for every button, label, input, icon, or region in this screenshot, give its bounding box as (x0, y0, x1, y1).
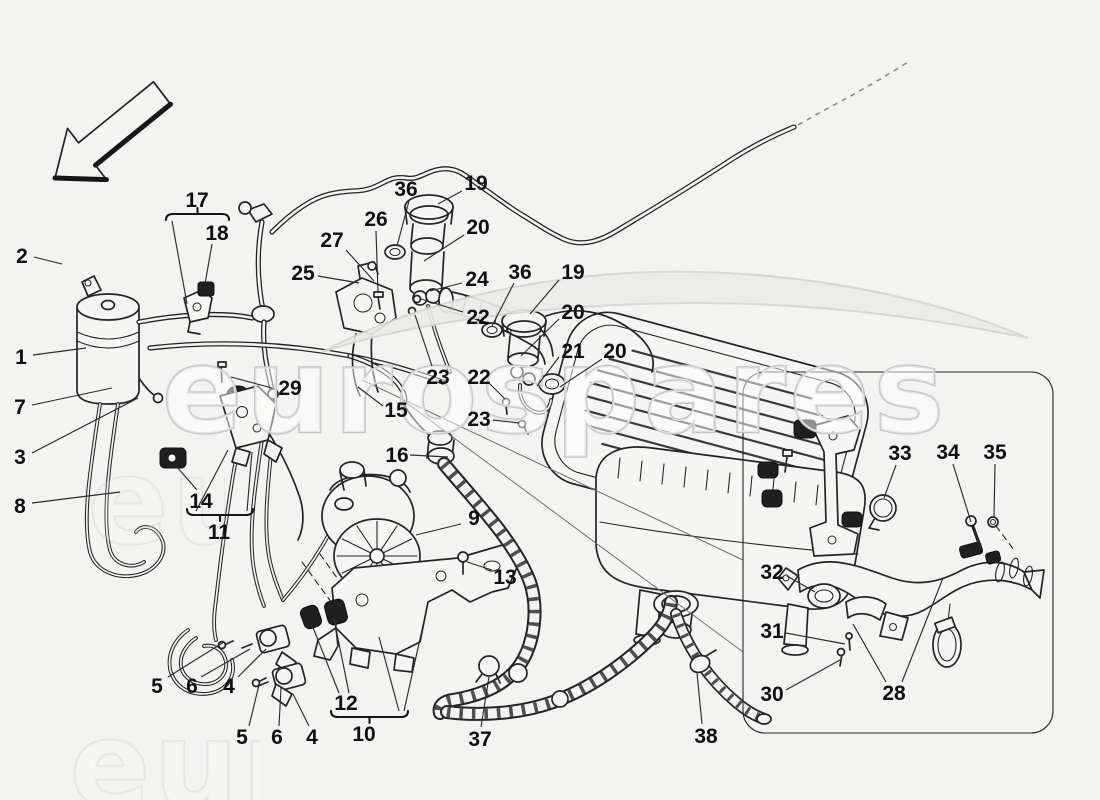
callout-23: 23 (467, 408, 490, 431)
leader-line-33 (884, 465, 896, 498)
callout-1: 1 (15, 346, 27, 369)
direction-arrow-icon (55, 82, 171, 180)
callout-30: 30 (760, 683, 783, 706)
callout-8: 8 (14, 495, 26, 518)
callout-19: 19 (464, 172, 487, 195)
leader-line-38 (697, 673, 702, 724)
callout-36: 36 (394, 178, 417, 201)
callout-12: 12 (334, 692, 357, 715)
leader-line-35 (994, 464, 995, 516)
callout-20: 20 (603, 340, 626, 363)
parts-diagram-page: eurospares eurospares eurospares 2173817… (0, 0, 1100, 800)
callout-2: 2 (16, 245, 28, 268)
callout-23: 23 (426, 366, 449, 389)
leader-line-30 (786, 660, 840, 690)
callout-5: 5 (151, 675, 163, 698)
callout-16: 16 (385, 444, 408, 467)
leader-line-2 (34, 257, 62, 264)
callout-28: 28 (882, 682, 906, 705)
callout-22: 22 (466, 306, 489, 329)
callout-35: 35 (983, 441, 1007, 464)
callout-21: 21 (561, 340, 585, 363)
callout-3: 3 (14, 446, 26, 469)
callout-14: 14 (189, 490, 213, 513)
callout-9: 9 (468, 507, 480, 530)
callout-36: 36 (508, 261, 531, 284)
callout-6: 6 (271, 726, 283, 749)
callout-19: 19 (561, 261, 584, 284)
leader-line-18 (205, 244, 212, 284)
canister-part (77, 276, 139, 404)
callout-18: 18 (205, 222, 229, 245)
leader-line-17 (172, 221, 187, 304)
leader-line-5 (168, 642, 224, 677)
callout-4: 4 (223, 675, 235, 698)
callout-33: 33 (888, 442, 911, 465)
callout-17: 17 (185, 189, 208, 212)
callout-20: 20 (466, 216, 489, 239)
leader-line-3 (32, 398, 138, 453)
callout-29: 29 (278, 377, 301, 400)
callout-38: 38 (694, 725, 718, 748)
pump-bracket-part (299, 544, 520, 672)
callout-27: 27 (320, 229, 343, 252)
leader-line-25 (318, 276, 359, 283)
callout-31: 31 (760, 620, 784, 643)
callout-10: 10 (352, 723, 375, 746)
callout-34: 34 (936, 441, 960, 464)
callout-15: 15 (384, 399, 408, 422)
exploded-parts-diagram: eurospares eurospares eurospares 2173817… (0, 0, 1100, 800)
callout-20: 20 (561, 301, 584, 324)
callout-5: 5 (236, 726, 248, 749)
callout-6: 6 (186, 675, 198, 698)
leader-line-4 (293, 694, 309, 726)
callout-26: 26 (364, 208, 387, 231)
callout-7: 7 (14, 396, 26, 419)
callout-4: 4 (306, 726, 318, 749)
callout-11: 11 (208, 521, 231, 544)
callout-22: 22 (467, 366, 490, 389)
callout-32: 32 (760, 561, 783, 584)
callout-24: 24 (465, 268, 489, 291)
leader-line-34 (953, 464, 971, 522)
callout-25: 25 (291, 262, 315, 285)
leader-line-9 (416, 524, 461, 535)
callout-13: 13 (493, 566, 516, 589)
callout-37: 37 (468, 728, 491, 751)
